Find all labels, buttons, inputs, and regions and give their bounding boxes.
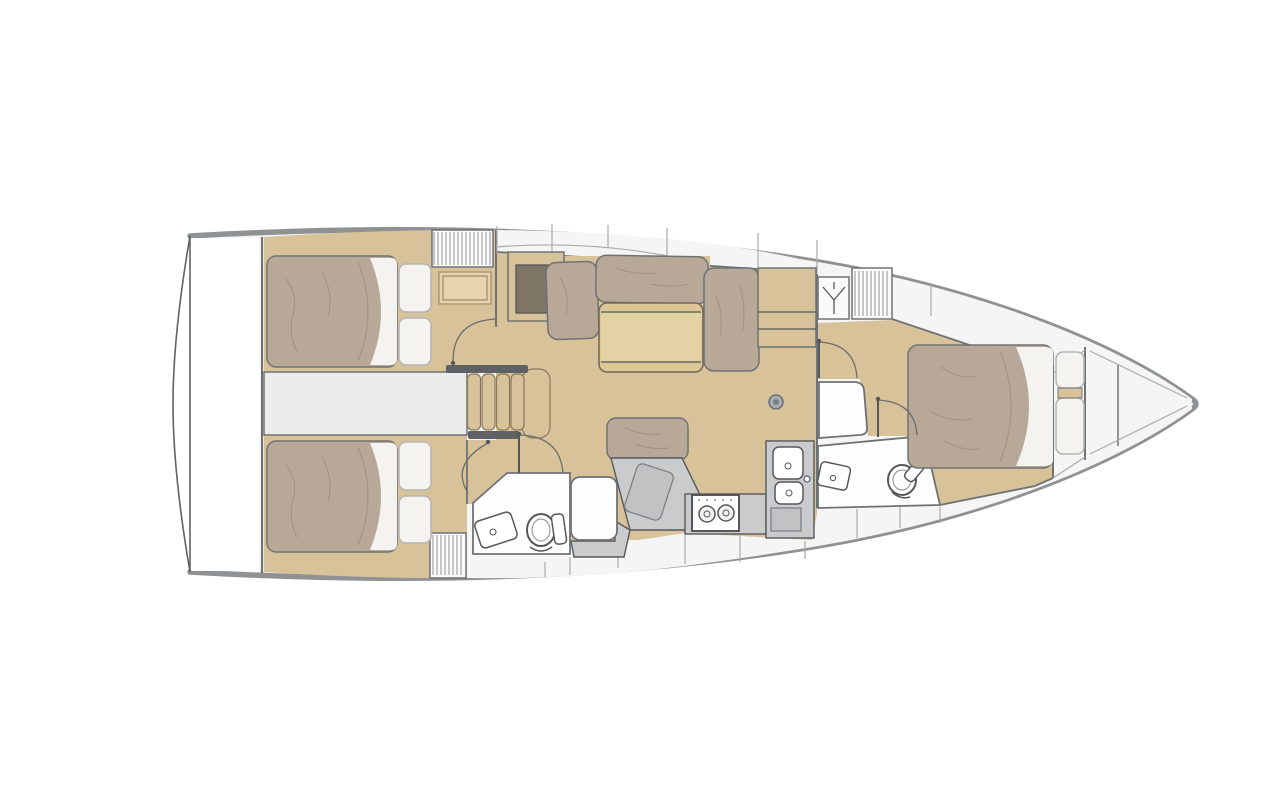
forward-pillow-shelf [1058,388,1082,398]
stair-step-4 [511,374,524,430]
galley-locker-front [771,508,801,531]
port-vanity-inner [443,276,487,300]
forward-head-door-hinge [876,397,880,401]
stove-burner-2 [718,505,734,521]
mast-post-core [773,399,779,405]
galley-faucet [804,476,810,482]
aft-head-shower [571,477,617,540]
starboard-cabin-door-hinge [486,440,490,444]
stair-rail-bottom [468,431,519,439]
port-pillow-1 [399,264,431,312]
floor-plan [40,16,1262,784]
settee-arm-cushion [546,261,600,340]
forward-cabin-door-hinge [817,339,821,343]
saloon-table-leaf [601,313,701,361]
corridor [264,372,467,435]
settee-corner-cushion [704,268,759,371]
stair-rail-top [446,365,528,373]
forward-pillow-2 [1056,398,1084,454]
stair-step-3 [497,374,510,430]
sink-basin-2 [775,482,803,504]
forward-head-shower-seat [819,382,867,438]
forward-pillow-1 [1056,352,1084,388]
port-cabin-door-hinge [451,361,455,365]
stair-step-1 [468,374,481,430]
port-louver-slats [434,232,490,265]
stove-burner-1 [699,506,715,522]
aft-head-door-hinge [517,432,521,436]
starboard-pillow-2 [399,496,431,543]
forward-louvered-locker [852,268,892,319]
port-pillow-2 [399,318,431,365]
settee-back-cushion [596,255,709,304]
starboard-pillow-1 [399,442,431,490]
forward-cabinets [758,268,816,347]
floor-plan-canvas [40,16,1262,784]
stair-landing [522,369,550,438]
stern-platform [191,238,262,571]
bench-seat [607,418,688,460]
stern-transom [173,236,190,572]
stair-step-2 [482,374,495,430]
